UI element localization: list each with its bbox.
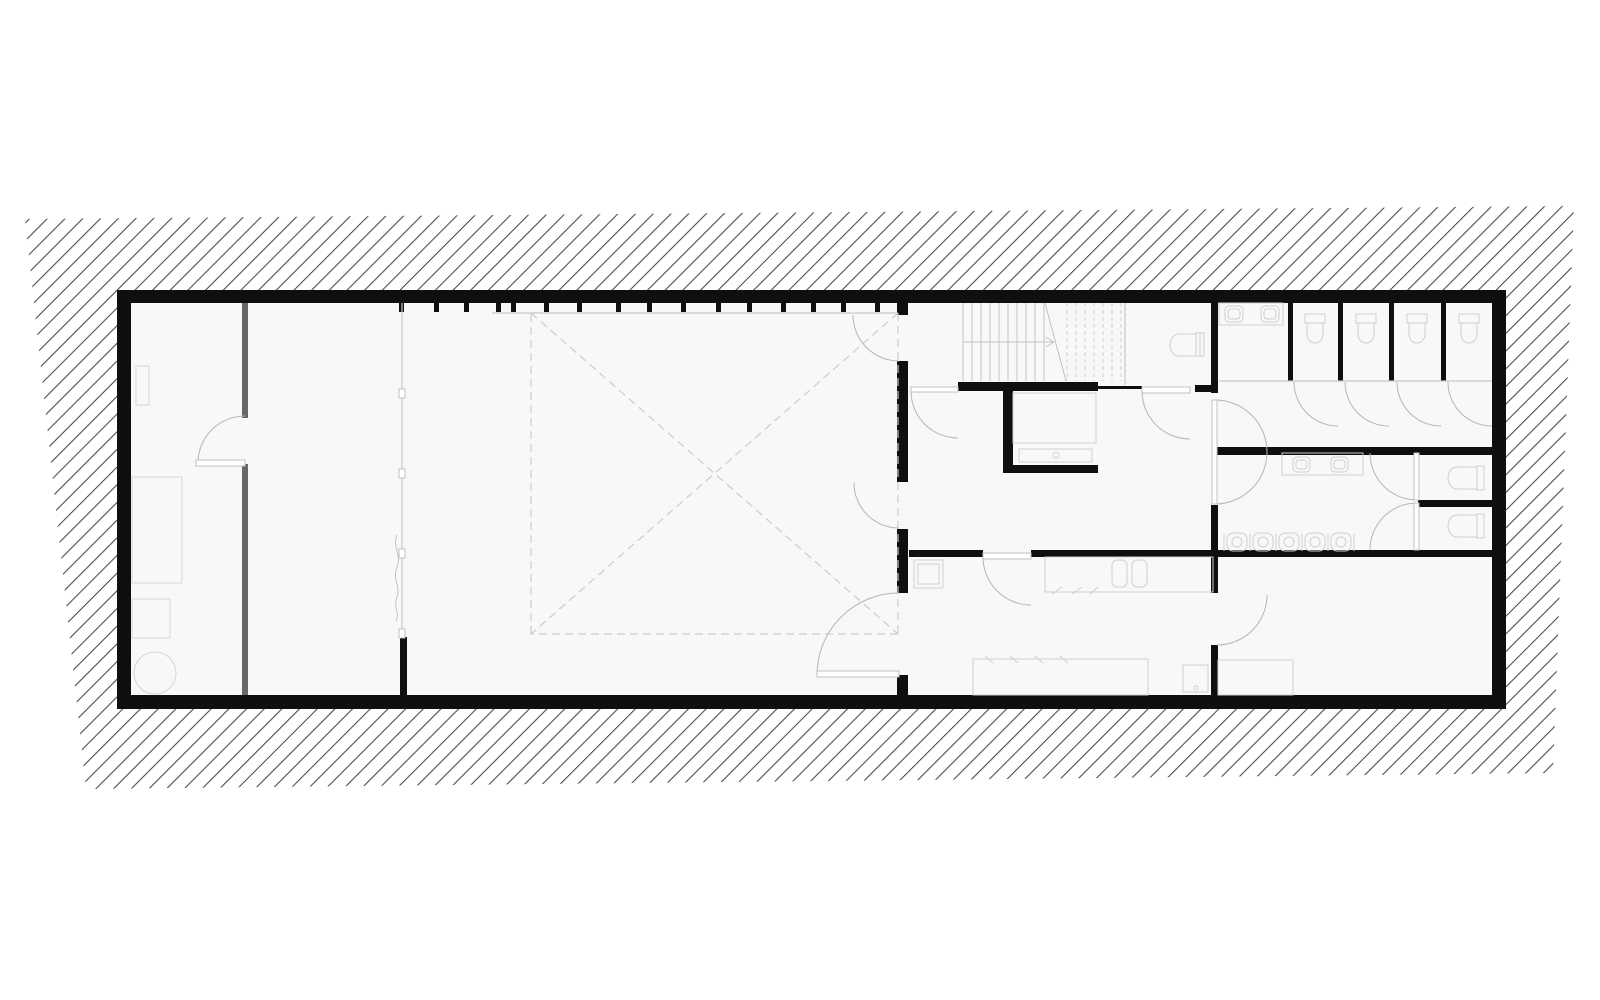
black-interior-walls-shape — [1211, 505, 1218, 593]
black-interior-walls-shape — [1288, 303, 1293, 381]
black-interior-walls-shape — [897, 529, 908, 593]
gray-partition-walls-shape — [242, 303, 248, 418]
black-interior-walls-shape — [897, 675, 908, 695]
door-leaves-shape — [983, 553, 1031, 559]
facade-mullion-ticks-shape — [616, 303, 621, 312]
black-interior-walls-shape — [1389, 303, 1394, 381]
facade-mullion-ticks-shape — [811, 303, 816, 312]
facade-mullion-ticks-shape — [511, 303, 516, 312]
door-leaves-shape — [196, 460, 245, 466]
facade-mullion-ticks-shape — [681, 303, 686, 312]
gray-partition-walls — [242, 303, 248, 695]
building-interior-shape — [131, 303, 1492, 695]
black-interior-walls-shape — [909, 550, 983, 557]
facade-mullion-ticks-shape — [747, 303, 752, 312]
site-plan-page — [0, 0, 1600, 1000]
black-interior-walls-shape — [400, 637, 407, 695]
facade-mullion-ticks-shape — [434, 303, 439, 312]
floor-plan-drawing — [0, 0, 1600, 1000]
flexible-partition-nodes-shape — [399, 549, 405, 558]
facade-mullion-ticks-shape — [577, 303, 582, 312]
gray-partition-walls-shape — [242, 464, 248, 695]
black-interior-walls-shape — [1418, 500, 1492, 507]
black-interior-walls-shape — [1441, 303, 1446, 381]
door-leaves-shape — [1212, 400, 1217, 504]
black-interior-walls-shape — [897, 361, 908, 482]
black-interior-walls-shape — [958, 382, 1098, 391]
black-interior-walls-shape — [1211, 645, 1218, 695]
flexible-partition-nodes-shape — [399, 629, 405, 638]
black-interior-walls-shape — [897, 303, 908, 315]
black-interior-walls-shape — [1003, 391, 1013, 473]
door-leaves-shape — [817, 671, 899, 677]
door-leaves-shape — [911, 387, 958, 392]
facade-mullion-ticks-shape — [841, 303, 846, 312]
facade-mullion-ticks-shape — [647, 303, 652, 312]
door-leaves-shape — [1414, 503, 1419, 550]
black-interior-walls-shape — [1195, 385, 1211, 392]
facade-mullion-ticks-shape — [544, 303, 549, 312]
building-interior — [131, 303, 1492, 695]
flexible-partition-nodes-shape — [399, 469, 405, 478]
facade-mullion-ticks-shape — [716, 303, 721, 312]
door-leaves-shape — [1414, 453, 1419, 500]
black-interior-walls-shape — [1003, 465, 1098, 473]
flexible-partition-nodes-shape — [399, 389, 405, 398]
facade-mullion-ticks-shape — [781, 303, 786, 312]
black-interior-walls-shape — [1211, 303, 1218, 393]
facade-mullion-ticks-shape — [464, 303, 469, 312]
door-leaves-shape — [1142, 387, 1190, 393]
black-interior-walls-shape — [1214, 447, 1492, 455]
black-interior-walls-shape — [1338, 303, 1343, 381]
facade-mullion-ticks-shape — [875, 303, 880, 312]
facade-mullion-ticks-shape — [496, 303, 501, 312]
black-interior-walls-shape — [1098, 386, 1142, 389]
